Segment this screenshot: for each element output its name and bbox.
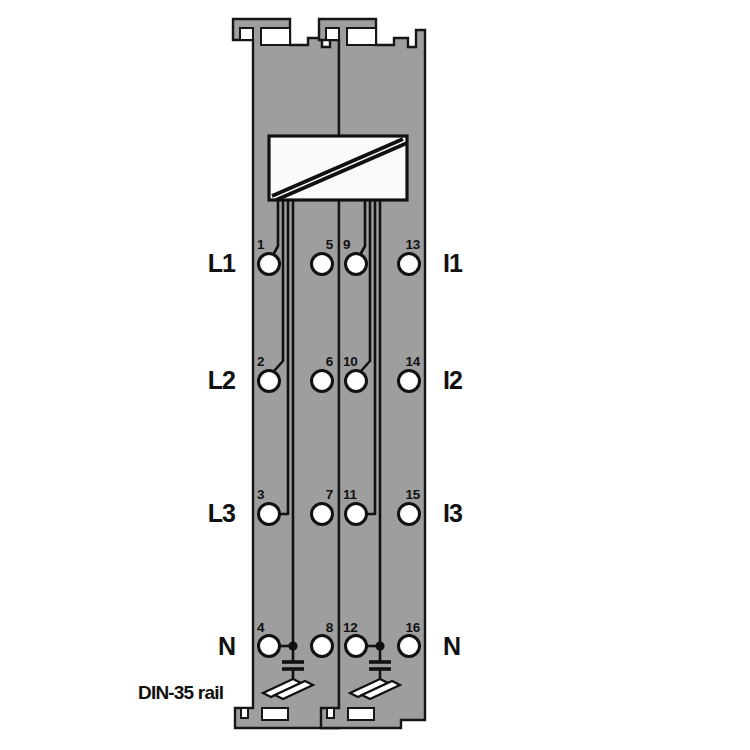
terminal-14 [399, 371, 420, 392]
terminal-1 [259, 254, 280, 275]
terminal-15 [399, 504, 420, 525]
module-left-foot-slot [241, 708, 248, 718]
label-l1: L1 [208, 249, 236, 277]
terminal-number-2: 2 [257, 354, 264, 369]
terminal-number-3: 3 [257, 487, 265, 502]
module-left-bottom-notch [262, 708, 288, 720]
screenshot-stage: 1 5 9 13 2 6 10 14 3 7 11 15 4 8 12 16 L… [0, 0, 750, 750]
module-right-foot-slot [327, 708, 334, 718]
din-rail-caption: DIN-35 rail [138, 682, 223, 703]
junction-dot-left [288, 641, 297, 650]
label-i3: I3 [443, 499, 462, 527]
terminal-number-10: 10 [343, 354, 357, 369]
converter-symbol [269, 136, 407, 200]
module-diagram: 1 5 9 13 2 6 10 14 3 7 11 15 4 8 12 16 L… [0, 0, 750, 750]
terminal-2 [259, 371, 280, 392]
terminal-12 [346, 636, 367, 657]
terminal-number-16: 16 [406, 620, 421, 635]
terminal-number-11: 11 [343, 487, 357, 502]
label-l3: L3 [208, 499, 235, 527]
terminal-number-13: 13 [406, 237, 421, 252]
terminal-number-12: 12 [343, 620, 357, 635]
module-left-top-notch [261, 28, 290, 45]
terminal-number-14: 14 [406, 354, 421, 369]
terminal-number-4: 4 [257, 620, 265, 635]
terminal-10 [346, 371, 367, 392]
label-n-right: N [443, 632, 460, 660]
module-right-bottom-notch [348, 708, 374, 720]
terminal-number-15: 15 [406, 487, 421, 502]
terminal-number-9: 9 [343, 237, 350, 252]
terminal-11 [346, 504, 367, 525]
junction-dot-right [375, 641, 384, 650]
label-i2: I2 [443, 366, 462, 394]
terminal-7 [312, 504, 333, 525]
terminal-4 [259, 636, 280, 657]
module-right-hook-slot [326, 28, 339, 40]
terminal-16 [399, 636, 420, 657]
label-l2: L2 [208, 366, 235, 394]
label-i1: I1 [443, 249, 463, 277]
module-right-top-notch [347, 28, 376, 45]
terminal-number-6: 6 [326, 354, 334, 369]
terminal-8 [312, 636, 333, 657]
terminal-9 [346, 254, 367, 275]
terminal-number-1: 1 [257, 237, 265, 252]
label-n-left: N [218, 632, 235, 660]
terminal-number-7: 7 [326, 487, 333, 502]
terminal-13 [399, 254, 420, 275]
terminal-5 [312, 254, 333, 275]
terminal-6 [312, 371, 333, 392]
module-left-hook-slot [240, 28, 253, 40]
terminal-number-8: 8 [326, 620, 334, 635]
terminal-number-5: 5 [326, 237, 334, 252]
terminal-3 [259, 504, 280, 525]
